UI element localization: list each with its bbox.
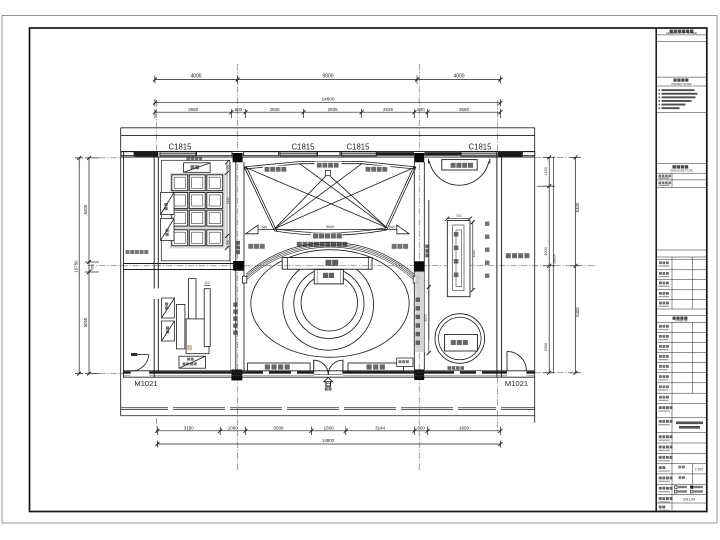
svg-text:9000: 9000 bbox=[322, 74, 333, 80]
svg-text:2835: 2835 bbox=[383, 107, 394, 112]
svg-text:C1815: C1815 bbox=[169, 143, 193, 152]
svg-text:C1815: C1815 bbox=[469, 143, 493, 152]
svg-text:550: 550 bbox=[226, 240, 230, 246]
svg-text:5400: 5400 bbox=[575, 202, 580, 212]
svg-text:110: 110 bbox=[204, 281, 209, 285]
svg-text:C1815: C1815 bbox=[347, 143, 371, 152]
svg-text:1500: 1500 bbox=[324, 425, 335, 430]
svg-text:500: 500 bbox=[417, 107, 425, 112]
svg-text:500: 500 bbox=[417, 425, 425, 430]
svg-text:PROJECT NOTES: PROJECT NOTES bbox=[671, 83, 691, 86]
svg-text:SIGNATURE: SIGNATURE bbox=[675, 320, 688, 323]
svg-text:2835: 2835 bbox=[328, 107, 339, 112]
svg-text:14800: 14800 bbox=[322, 97, 335, 102]
svg-text:1810: 1810 bbox=[226, 197, 230, 205]
svg-text:5050: 5050 bbox=[83, 317, 88, 327]
svg-text:5200: 5200 bbox=[83, 204, 88, 214]
svg-text:540: 540 bbox=[389, 226, 395, 230]
svg-text:2300: 2300 bbox=[544, 343, 548, 351]
svg-text:3200: 3200 bbox=[424, 314, 428, 322]
svg-text:DESIGN INSTITUTE: DESIGN INSTITUTE bbox=[670, 170, 693, 173]
svg-text:1450: 1450 bbox=[544, 167, 548, 175]
svg-text:2835: 2835 bbox=[270, 107, 281, 112]
svg-text:3650: 3650 bbox=[188, 107, 199, 112]
svg-text:500: 500 bbox=[235, 107, 243, 112]
svg-text:M1021: M1021 bbox=[134, 379, 157, 388]
svg-text:C1815: C1815 bbox=[292, 143, 316, 152]
svg-text:5400: 5400 bbox=[575, 307, 580, 317]
svg-text:GENERAL LAYOUT SCHEME: GENERAL LAYOUT SCHEME bbox=[666, 32, 697, 35]
svg-text:1650: 1650 bbox=[459, 425, 470, 430]
svg-text:450: 450 bbox=[226, 165, 230, 171]
svg-text:M1021: M1021 bbox=[505, 379, 528, 388]
svg-text:5540: 5540 bbox=[326, 225, 334, 229]
svg-text:500: 500 bbox=[91, 264, 95, 270]
svg-text:1000: 1000 bbox=[228, 425, 239, 430]
svg-text:4000: 4000 bbox=[453, 74, 464, 80]
svg-text:10750: 10750 bbox=[73, 260, 78, 273]
svg-text:1:100: 1:100 bbox=[695, 468, 703, 472]
svg-text:4000: 4000 bbox=[190, 74, 201, 80]
svg-text:3000: 3000 bbox=[544, 247, 548, 255]
svg-text:16014: 16014 bbox=[553, 254, 557, 264]
svg-text:1510: 1510 bbox=[472, 250, 476, 257]
svg-text:540: 540 bbox=[262, 226, 268, 230]
svg-text:14800: 14800 bbox=[322, 438, 335, 443]
svg-text:3650: 3650 bbox=[459, 107, 470, 112]
svg-text:3150: 3150 bbox=[184, 425, 195, 430]
svg-text:2011.09: 2011.09 bbox=[683, 497, 695, 501]
svg-text:3144: 3144 bbox=[375, 425, 386, 430]
svg-text:3500: 3500 bbox=[273, 425, 284, 430]
svg-text:710: 710 bbox=[456, 214, 462, 218]
